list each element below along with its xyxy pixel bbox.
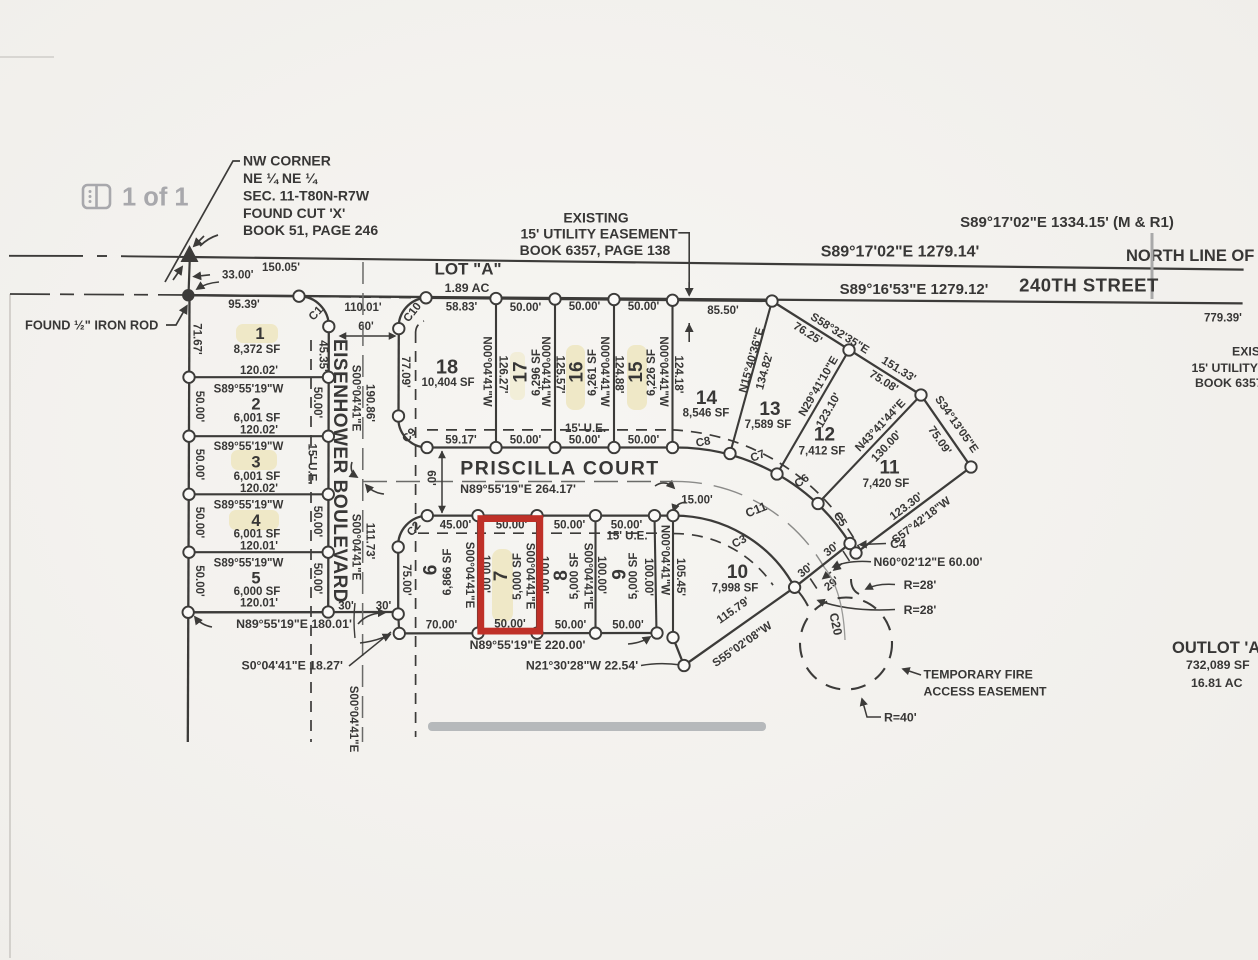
svg-text:16.81 AC: 16.81 AC xyxy=(1191,676,1243,690)
svg-text:732,089 SF: 732,089 SF xyxy=(1186,658,1250,672)
svg-text:N00°04'41"W: N00°04'41"W xyxy=(481,336,493,406)
svg-text:50.00': 50.00' xyxy=(311,506,323,538)
svg-text:77.09': 77.09' xyxy=(399,356,411,388)
svg-text:N89°55'19"E 220.00': N89°55'19"E 220.00' xyxy=(470,638,586,652)
svg-text:15.00': 15.00' xyxy=(681,495,713,507)
svg-text:50.00': 50.00' xyxy=(555,620,587,632)
svg-text:120.02': 120.02' xyxy=(240,425,278,437)
svg-text:4: 4 xyxy=(251,512,261,530)
svg-text:13: 13 xyxy=(759,399,780,420)
svg-text:71.67': 71.67' xyxy=(191,323,203,355)
svg-text:2: 2 xyxy=(251,395,260,413)
svg-text:1: 1 xyxy=(255,325,264,343)
svg-text:6,000 SF: 6,000 SF xyxy=(234,586,281,598)
svg-text:7,420 SF: 7,420 SF xyxy=(863,478,910,490)
svg-text:50.00': 50.00' xyxy=(628,301,660,313)
svg-text:6,866 SF: 6,866 SF xyxy=(442,549,454,596)
svg-text:S00°04'41"E: S00°04'41"E xyxy=(347,686,359,753)
svg-text:PRISCILLA COURT: PRISCILLA COURT xyxy=(460,457,659,479)
svg-text:SEC. 11-T80N-R7W: SEC. 11-T80N-R7W xyxy=(243,187,370,203)
svg-text:7: 7 xyxy=(491,571,512,582)
svg-text:124.18': 124.18' xyxy=(672,356,684,394)
svg-text:7,998 SF: 7,998 SF xyxy=(712,583,759,595)
svg-text:11: 11 xyxy=(879,458,900,479)
svg-text:N89°55'19"E 264.17': N89°55'19"E 264.17' xyxy=(460,482,576,496)
svg-text:58.83': 58.83' xyxy=(446,302,478,314)
svg-text:6,261 SF: 6,261 SF xyxy=(587,349,599,396)
svg-text:15' UTILITY EASEMENT: 15' UTILITY EASEMENT xyxy=(520,225,678,241)
svg-text:10,404 SF: 10,404 SF xyxy=(421,377,474,389)
svg-text:S89°17'02"E 1334.15' (M & R1): S89°17'02"E 1334.15' (M & R1) xyxy=(960,214,1174,231)
svg-text:50.00': 50.00' xyxy=(554,520,586,532)
svg-text:3: 3 xyxy=(251,453,260,471)
svg-text:105.45': 105.45' xyxy=(674,558,686,596)
svg-text:N00°04'41"W: N00°04'41"W xyxy=(539,336,551,406)
svg-text:7,589 SF: 7,589 SF xyxy=(745,419,792,431)
svg-text:6: 6 xyxy=(421,565,442,576)
svg-text:6,226 SF: 6,226 SF xyxy=(646,349,658,396)
svg-text:6,001 SF: 6,001 SF xyxy=(234,471,281,483)
svg-text:BOOK 6357, PAGE 138: BOOK 6357, PAGE 138 xyxy=(520,242,671,258)
svg-text:BOOK 51, PAGE 246: BOOK 51, PAGE 246 xyxy=(243,222,378,238)
svg-text:33.00': 33.00' xyxy=(222,270,254,282)
svg-text:150.05': 150.05' xyxy=(262,262,300,274)
svg-text:N00°04'41"W: N00°04'41"W xyxy=(659,525,671,595)
svg-text:70.00': 70.00' xyxy=(426,620,458,632)
svg-text:5,000 SF: 5,000 SF xyxy=(512,553,524,600)
svg-text:120.02': 120.02' xyxy=(240,365,278,377)
svg-text:S89°55'19"W: S89°55'19"W xyxy=(214,558,284,570)
svg-text:8,372 SF: 8,372 SF xyxy=(234,344,281,356)
svg-text:190.86': 190.86' xyxy=(364,384,376,422)
svg-text:R=40': R=40' xyxy=(884,710,917,724)
svg-text:50.00': 50.00' xyxy=(193,565,205,597)
svg-text:S0°04'41"E 18.27': S0°04'41"E 18.27' xyxy=(242,658,343,672)
svg-text:6,001 SF: 6,001 SF xyxy=(234,413,281,425)
svg-text:50.00': 50.00' xyxy=(569,301,601,313)
svg-text:16: 16 xyxy=(567,361,588,382)
svg-text:60': 60' xyxy=(358,321,374,333)
svg-text:NE ¼ NE ¼: NE ¼ NE ¼ xyxy=(243,170,318,186)
svg-text:S89°17'02"E 1279.14': S89°17'02"E 1279.14' xyxy=(821,244,980,261)
svg-text:17: 17 xyxy=(511,361,532,382)
svg-text:S00°04'41"E: S00°04'41"E xyxy=(524,543,536,610)
svg-text:111.73': 111.73' xyxy=(364,523,376,560)
svg-text:50.00': 50.00' xyxy=(510,435,542,447)
svg-text:1.89 AC: 1.89 AC xyxy=(445,281,490,295)
svg-text:TEMPORARY FIRE: TEMPORARY FIRE xyxy=(924,667,1033,681)
svg-text:100.00': 100.00' xyxy=(595,556,607,594)
svg-text:5: 5 xyxy=(251,569,260,587)
svg-text:N60°02'12"E 60.00': N60°02'12"E 60.00' xyxy=(874,555,983,569)
svg-text:15' U.E.: 15' U.E. xyxy=(565,423,606,435)
svg-text:NORTH LINE OF: NORTH LINE OF xyxy=(1126,247,1254,265)
svg-text:59.17': 59.17' xyxy=(445,435,477,447)
svg-text:15' UTILITY EASEMENT: 15' UTILITY EASEMENT xyxy=(1192,361,1258,375)
svg-text:EXISTING: EXISTING xyxy=(1232,344,1258,358)
svg-text:R=28': R=28' xyxy=(904,603,937,617)
svg-text:LOT "A": LOT "A" xyxy=(434,259,501,278)
svg-text:10: 10 xyxy=(727,562,748,583)
svg-text:85.50': 85.50' xyxy=(707,305,739,317)
svg-text:120.01': 120.01' xyxy=(240,541,278,553)
svg-text:50.00': 50.00' xyxy=(628,435,660,447)
svg-text:75.00': 75.00' xyxy=(400,564,412,596)
svg-text:50.00': 50.00' xyxy=(569,435,601,447)
svg-text:50.00': 50.00' xyxy=(193,507,205,539)
svg-text:120.02': 120.02' xyxy=(240,483,278,495)
svg-text:C4: C4 xyxy=(890,537,906,551)
svg-text:100.00': 100.00' xyxy=(642,558,654,596)
svg-text:N89°55'19"E 180.01': N89°55'19"E 180.01' xyxy=(236,617,352,631)
svg-text:50.00': 50.00' xyxy=(510,302,542,314)
svg-text:125.57': 125.57' xyxy=(554,356,566,394)
svg-text:5,000 SF: 5,000 SF xyxy=(628,553,640,600)
svg-text:S89°55'19"W: S89°55'19"W xyxy=(214,384,284,396)
svg-text:NW CORNER: NW CORNER xyxy=(243,153,331,169)
svg-text:5,000 SF: 5,000 SF xyxy=(569,553,581,600)
svg-text:240TH STREET: 240TH STREET xyxy=(1019,275,1159,296)
svg-text:50.00': 50.00' xyxy=(193,449,205,481)
svg-text:120.01': 120.01' xyxy=(240,598,278,610)
svg-text:18: 18 xyxy=(436,357,458,379)
svg-text:7,412 SF: 7,412 SF xyxy=(799,446,846,458)
svg-text:S00°04'41"E: S00°04'41"E xyxy=(582,543,594,610)
svg-text:S89°55'19"W: S89°55'19"W xyxy=(214,500,284,512)
svg-text:OUTLOT 'A': OUTLOT 'A' xyxy=(1172,639,1258,657)
svg-text:1 of 1: 1 of 1 xyxy=(122,183,189,211)
svg-text:N21°30'28"W 22.54': N21°30'28"W 22.54' xyxy=(526,658,638,672)
svg-text:50.00': 50.00' xyxy=(311,563,323,595)
svg-text:126.27': 126.27' xyxy=(497,356,509,394)
svg-text:50.00': 50.00' xyxy=(311,387,323,419)
svg-text:N00°04'41"W: N00°04'41"W xyxy=(657,336,669,406)
svg-text:12: 12 xyxy=(814,425,835,446)
svg-text:S00°04'41"E: S00°04'41"E xyxy=(350,514,362,581)
svg-text:BOOK 6357, PAGE 138: BOOK 6357, PAGE 138 xyxy=(1195,376,1258,390)
svg-text:14: 14 xyxy=(696,388,718,409)
svg-text:60': 60' xyxy=(425,470,437,486)
svg-text:ACCESS EASEMENT: ACCESS EASEMENT xyxy=(924,684,1047,698)
svg-text:45.00': 45.00' xyxy=(440,520,472,532)
svg-text:95.39': 95.39' xyxy=(228,299,260,311)
svg-text:15' U.E.: 15' U.E. xyxy=(606,531,647,543)
svg-text:45.35': 45.35' xyxy=(317,340,329,372)
svg-text:N00°04'41"W: N00°04'41"W xyxy=(598,336,610,406)
svg-text:15: 15 xyxy=(626,361,647,383)
svg-text:S00°04'41"E: S00°04'41"E xyxy=(463,542,475,609)
svg-text:FOUND ½" IRON ROD: FOUND ½" IRON ROD xyxy=(25,318,158,333)
svg-text:EXISTING: EXISTING xyxy=(563,209,628,225)
svg-text:S00°04'41"E: S00°04'41"E xyxy=(350,365,362,432)
svg-text:S89°16'53"E 1279.12': S89°16'53"E 1279.12' xyxy=(840,281,989,298)
svg-text:30': 30' xyxy=(376,601,392,613)
svg-text:50.00': 50.00' xyxy=(193,391,205,423)
svg-text:FOUND CUT 'X': FOUND CUT 'X' xyxy=(243,205,345,221)
svg-text:6,001 SF: 6,001 SF xyxy=(234,529,281,541)
svg-text:8,546 SF: 8,546 SF xyxy=(683,408,730,420)
svg-text:50.00': 50.00' xyxy=(612,620,644,632)
svg-text:779.39': 779.39' xyxy=(1204,313,1242,325)
svg-text:124.88': 124.88' xyxy=(613,356,625,394)
svg-text:R=28': R=28' xyxy=(904,578,937,592)
